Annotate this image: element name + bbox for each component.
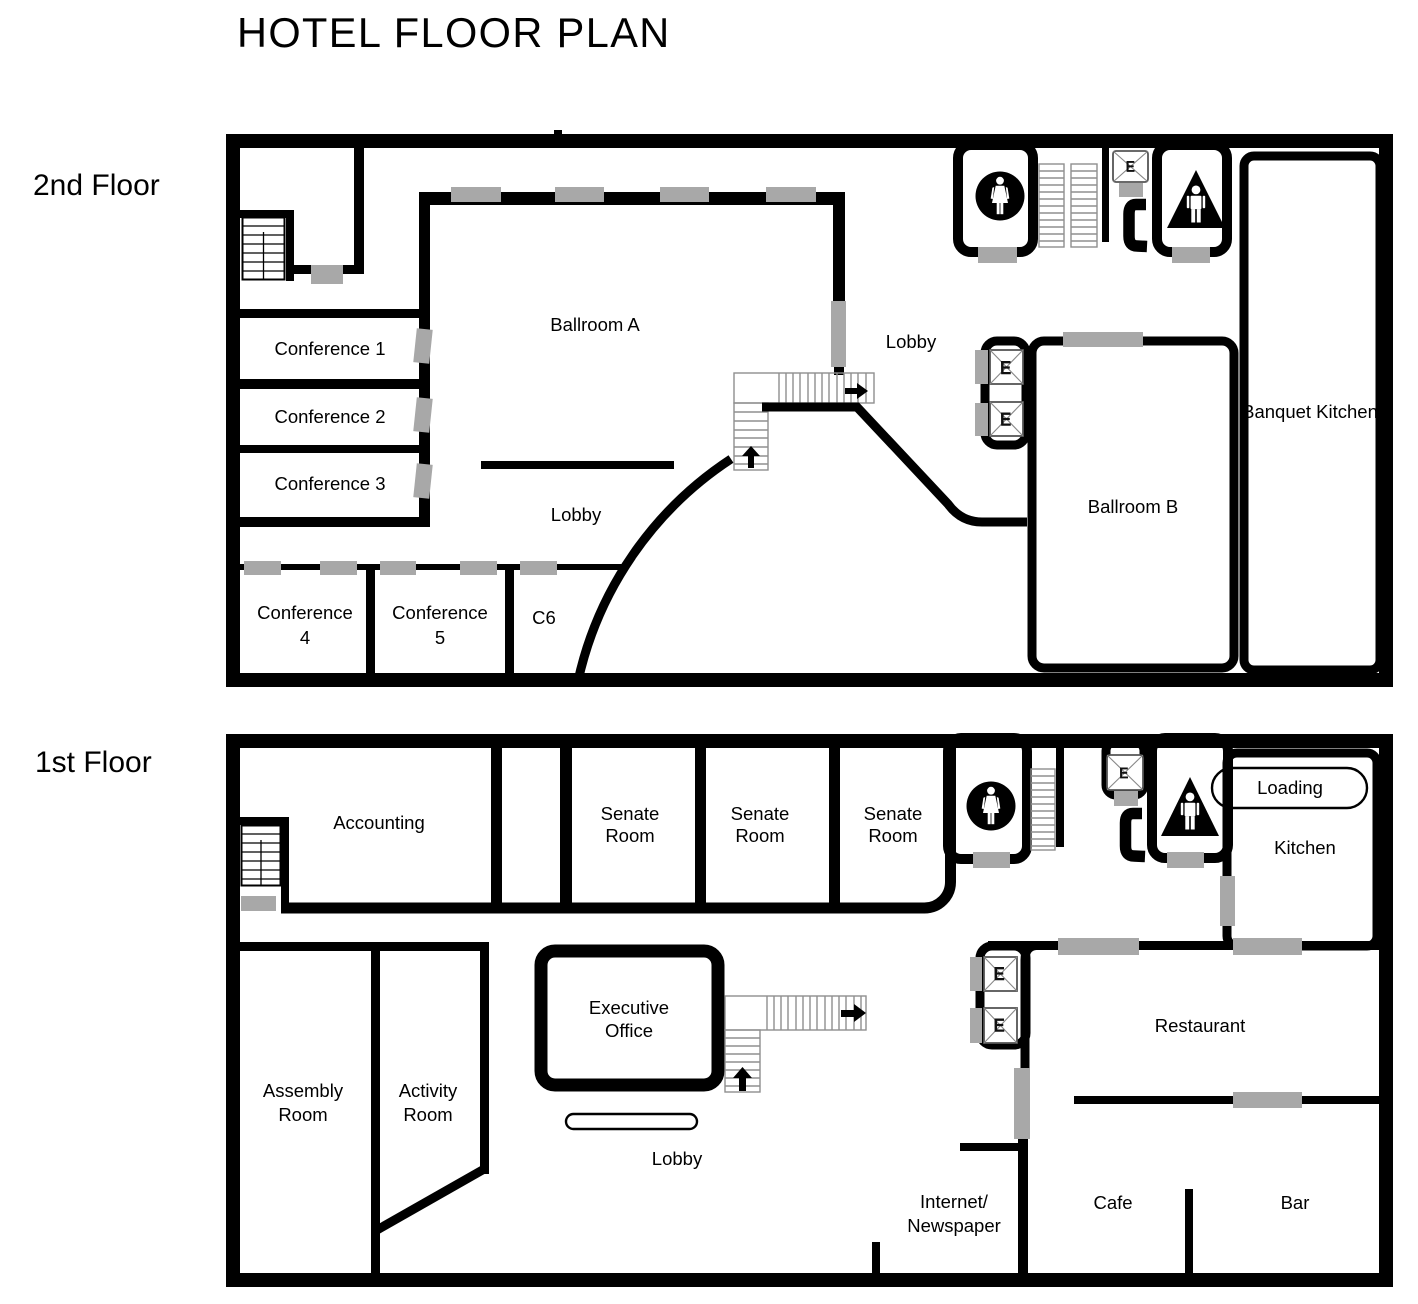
- svg-text:5: 5: [435, 627, 445, 648]
- svg-text:4: 4: [300, 627, 310, 648]
- svg-text:Cafe: Cafe: [1093, 1192, 1132, 1213]
- svg-text:Executive: Executive: [589, 997, 669, 1018]
- svg-text:Newspaper: Newspaper: [907, 1215, 1001, 1236]
- svg-text:Senate: Senate: [864, 803, 923, 824]
- svg-text:Senate: Senate: [731, 803, 790, 824]
- svg-text:Loading: Loading: [1257, 777, 1323, 798]
- svg-text:Restaurant: Restaurant: [1155, 1015, 1246, 1036]
- svg-text:HOTEL FLOOR PLAN: HOTEL FLOOR PLAN: [237, 9, 671, 56]
- svg-text:Office: Office: [605, 1020, 653, 1041]
- svg-text:Conference 3: Conference 3: [274, 473, 385, 494]
- svg-text:Lobby: Lobby: [652, 1148, 703, 1169]
- svg-text:1st Floor: 1st Floor: [35, 746, 152, 779]
- svg-text:Room: Room: [278, 1104, 327, 1125]
- svg-text:Room: Room: [605, 825, 654, 846]
- svg-text:2nd Floor: 2nd Floor: [33, 169, 160, 202]
- svg-text:Conference: Conference: [257, 602, 353, 623]
- svg-text:Conference 1: Conference 1: [274, 338, 385, 359]
- svg-text:Bar: Bar: [1281, 1192, 1310, 1213]
- svg-text:Senate: Senate: [601, 803, 660, 824]
- svg-text:Kitchen: Kitchen: [1274, 837, 1336, 858]
- svg-text:Internet/: Internet/: [920, 1191, 989, 1212]
- svg-text:Room: Room: [735, 825, 784, 846]
- svg-text:Conference: Conference: [392, 602, 488, 623]
- svg-text:Lobby: Lobby: [551, 504, 602, 525]
- svg-text:Banquet Kitchen: Banquet Kitchen: [1242, 401, 1378, 422]
- svg-text:Ballroom B: Ballroom B: [1088, 496, 1178, 517]
- svg-text:Lobby: Lobby: [886, 331, 937, 352]
- svg-text:Accounting: Accounting: [333, 812, 425, 833]
- svg-text:Room: Room: [868, 825, 917, 846]
- svg-text:Activity: Activity: [399, 1080, 458, 1101]
- svg-text:Ballroom A: Ballroom A: [550, 314, 640, 335]
- svg-text:Room: Room: [403, 1104, 452, 1125]
- svg-text:C6: C6: [532, 607, 556, 628]
- svg-text:Conference 2: Conference 2: [274, 406, 385, 427]
- svg-text:Assembly: Assembly: [263, 1080, 344, 1101]
